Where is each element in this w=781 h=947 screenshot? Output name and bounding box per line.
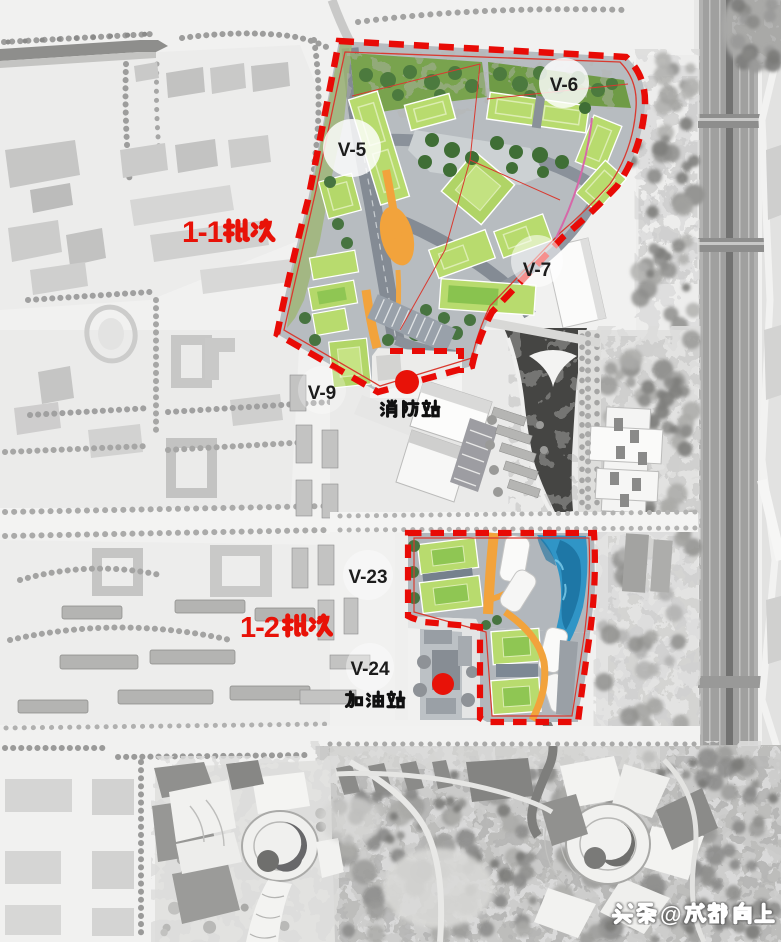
- svg-text:1-1: 1-1: [182, 216, 223, 249]
- svg-text:V-23: V-23: [348, 567, 387, 588]
- svg-text:V-9: V-9: [308, 383, 337, 404]
- svg-text:1-2: 1-2: [240, 612, 279, 644]
- svg-text:V-7: V-7: [523, 260, 552, 281]
- svg-text:V-24: V-24: [350, 659, 390, 680]
- svg-text:V-5: V-5: [338, 140, 367, 161]
- svg-text:@: @: [660, 902, 681, 927]
- svg-text:V-6: V-6: [550, 75, 579, 96]
